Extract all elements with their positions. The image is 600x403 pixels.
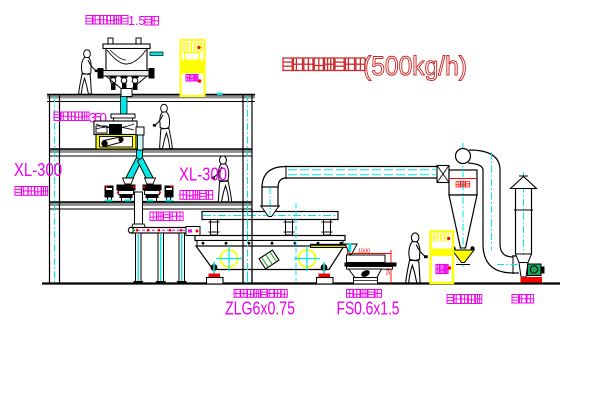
svg-text:XL-300: XL-300 [14, 160, 62, 180]
svg-text:XL-300: XL-300 [179, 165, 227, 185]
svg-text:ZLG6x0.75: ZLG6x0.75 [225, 298, 295, 319]
svg-text:(500kg/h): (500kg/h) [363, 51, 467, 81]
svg-text:1500: 1500 [358, 249, 370, 255]
svg-text:1.5: 1.5 [128, 14, 145, 28]
svg-text:FS0.6x1.5: FS0.6x1.5 [337, 298, 400, 319]
